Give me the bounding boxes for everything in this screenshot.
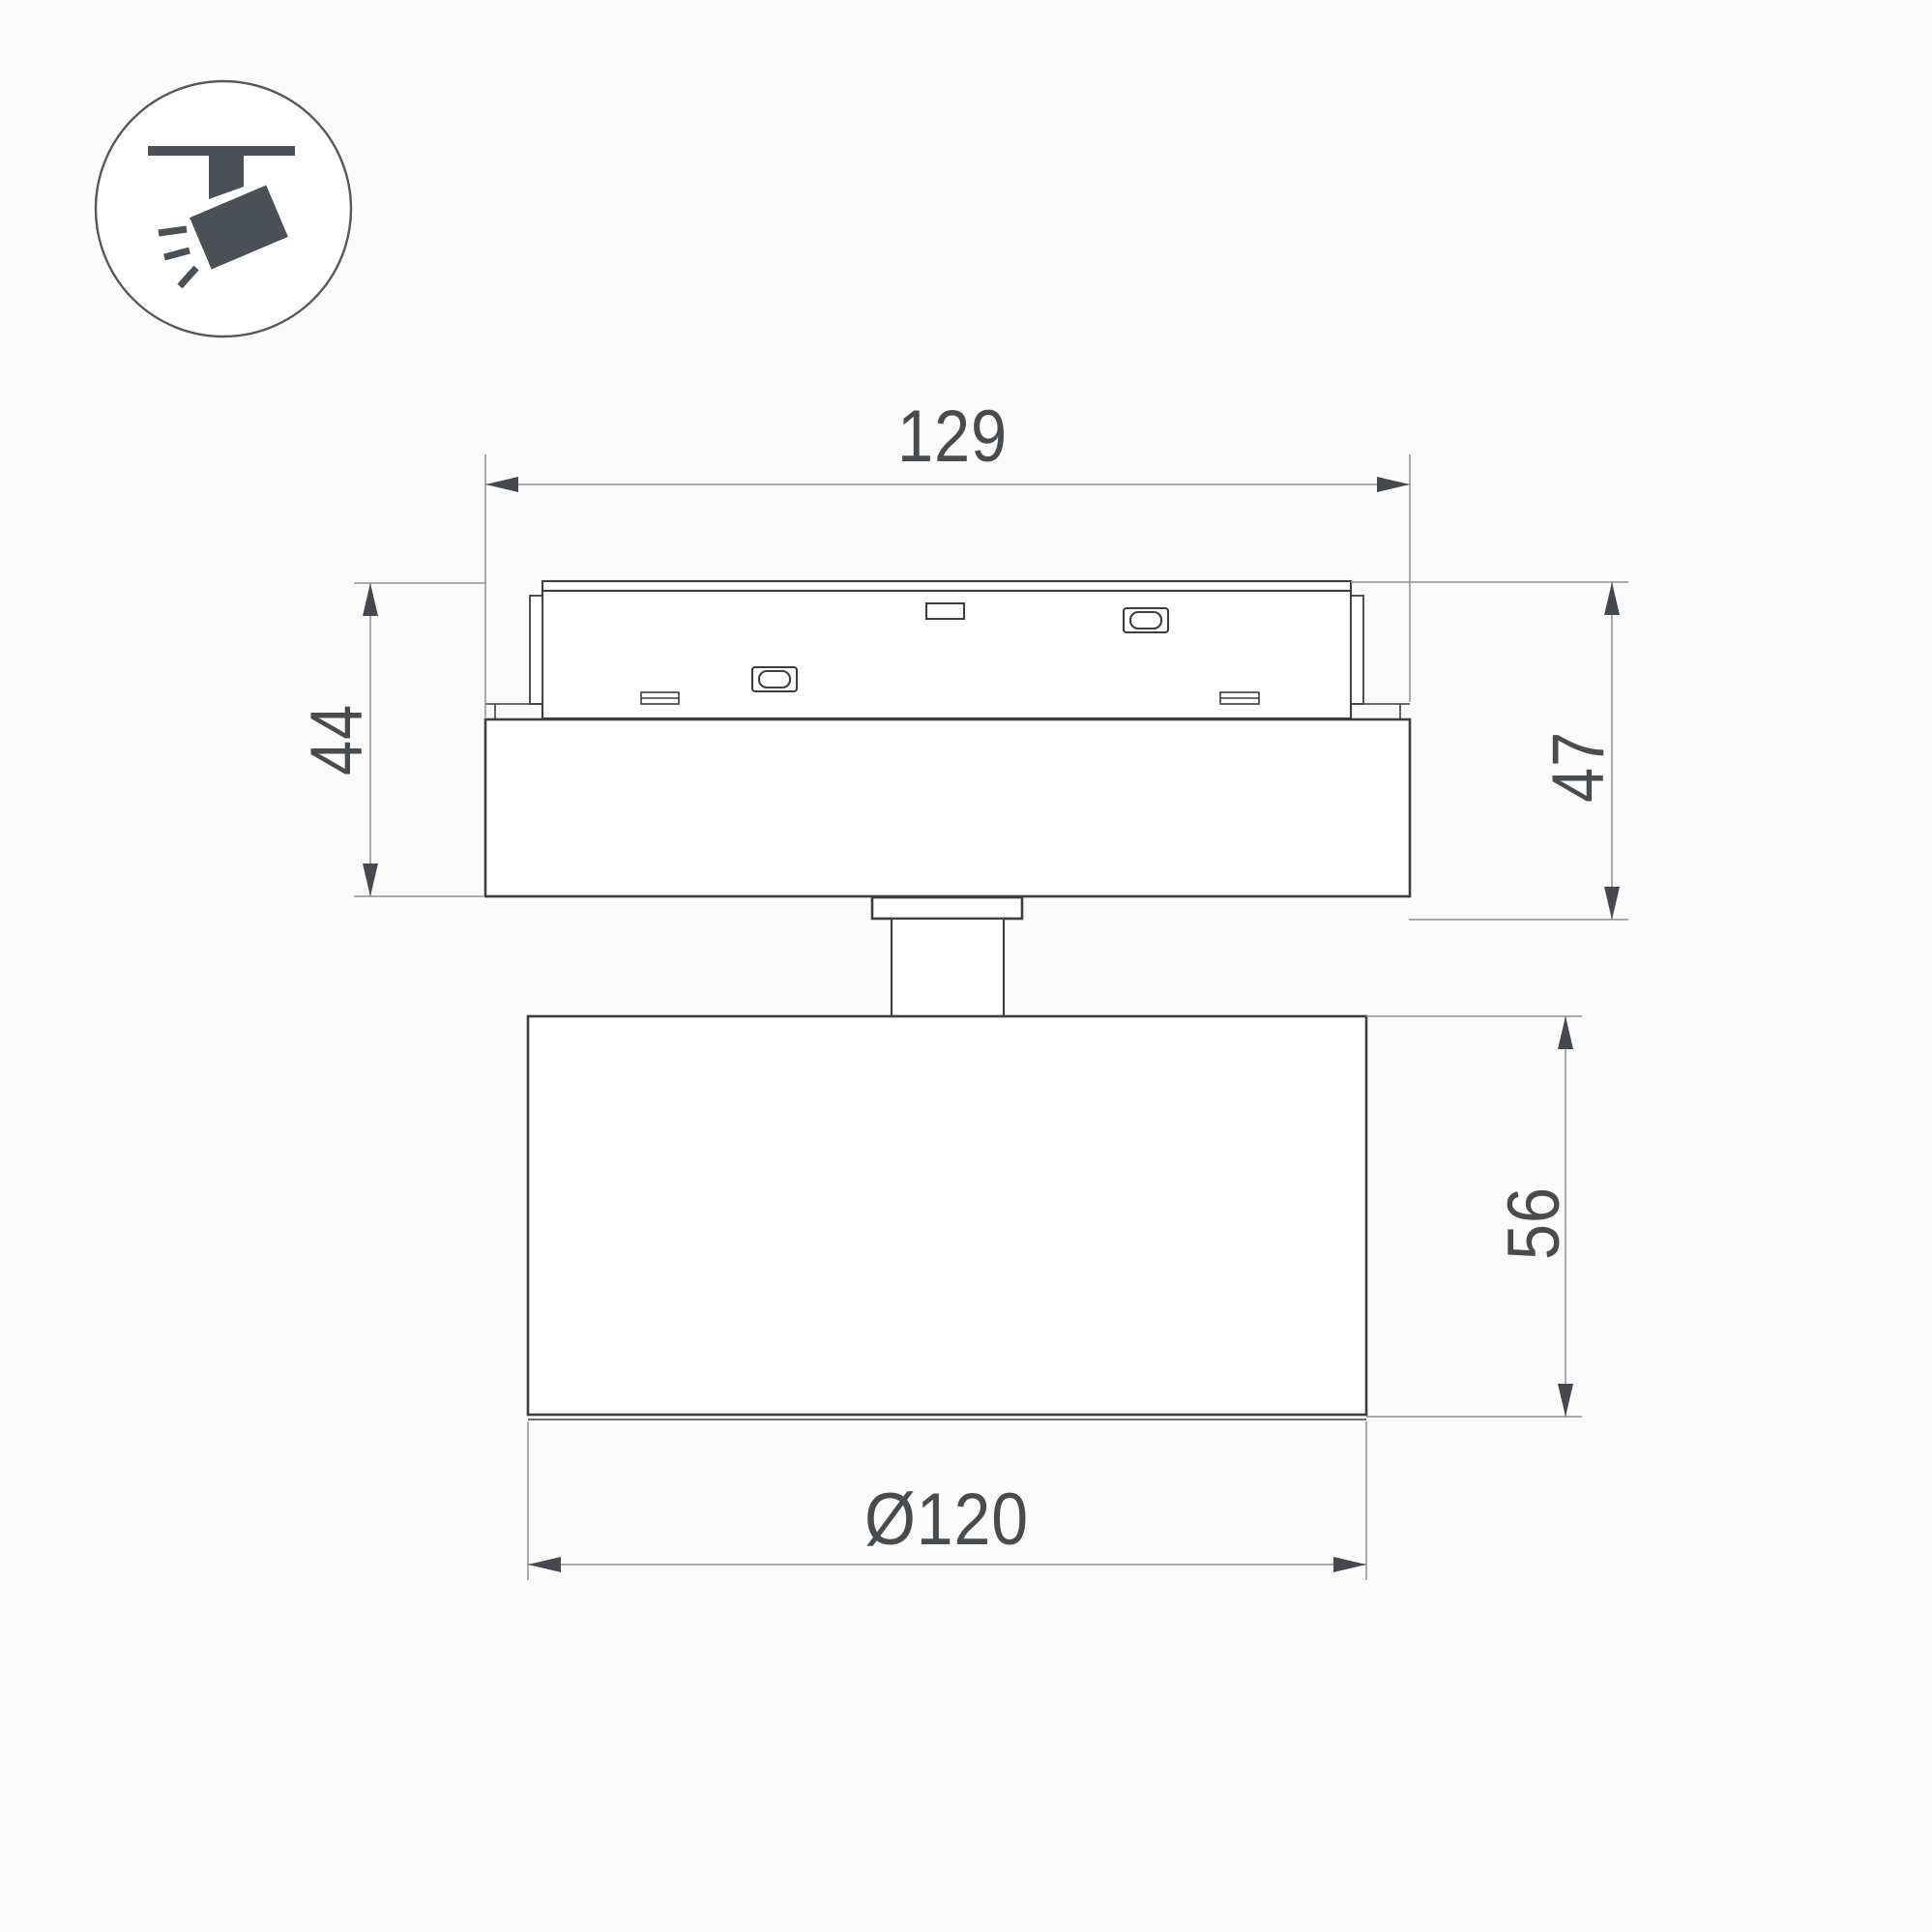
arrowhead-bottom [1604,887,1620,920]
base-step-left [485,704,542,719]
dimension-adapter-height: 44 [296,583,485,896]
dimension-label-diameter-120: Ø120 [864,1478,1029,1561]
dimension-body-diameter: Ø120 [528,1421,1366,1580]
dimension-body-height: 56 [1366,1016,1582,1417]
arrowhead-top [363,583,378,616]
arrowhead-right [1333,1557,1366,1572]
dimension-label-56: 56 [1493,1186,1575,1260]
dimension-label-44: 44 [296,704,378,776]
fixture-side-view [485,581,1410,1420]
lamp-body [528,1016,1366,1415]
dimension-label-129: 129 [897,395,1008,478]
track-plate [542,581,1351,591]
arrowhead-left [528,1557,561,1572]
arrowhead-top [1558,1016,1573,1049]
swivel-neck [892,919,1004,1016]
arrowhead-left [485,477,518,492]
arrowhead-top [1604,582,1620,615]
dimension-label-47: 47 [1537,731,1620,803]
adapter-right-tab [1351,596,1363,704]
arrowhead-bottom [1558,1384,1573,1417]
arrowhead-right [1377,477,1410,492]
icon-light-ray-1 [159,229,187,233]
track-adapter-housing [542,591,1351,718]
swivel-flange [872,897,1022,919]
icon-track-bar [148,146,295,156]
arrowhead-bottom [363,864,378,896]
track-spotlight-icon [96,81,351,337]
technical-drawing-page: 129 44 47 [0,0,1932,1932]
base-housing [485,719,1410,896]
drawing-canvas: 129 44 47 [0,0,1932,1932]
base-step-right [1351,704,1410,719]
adapter-left-tab [530,596,542,704]
